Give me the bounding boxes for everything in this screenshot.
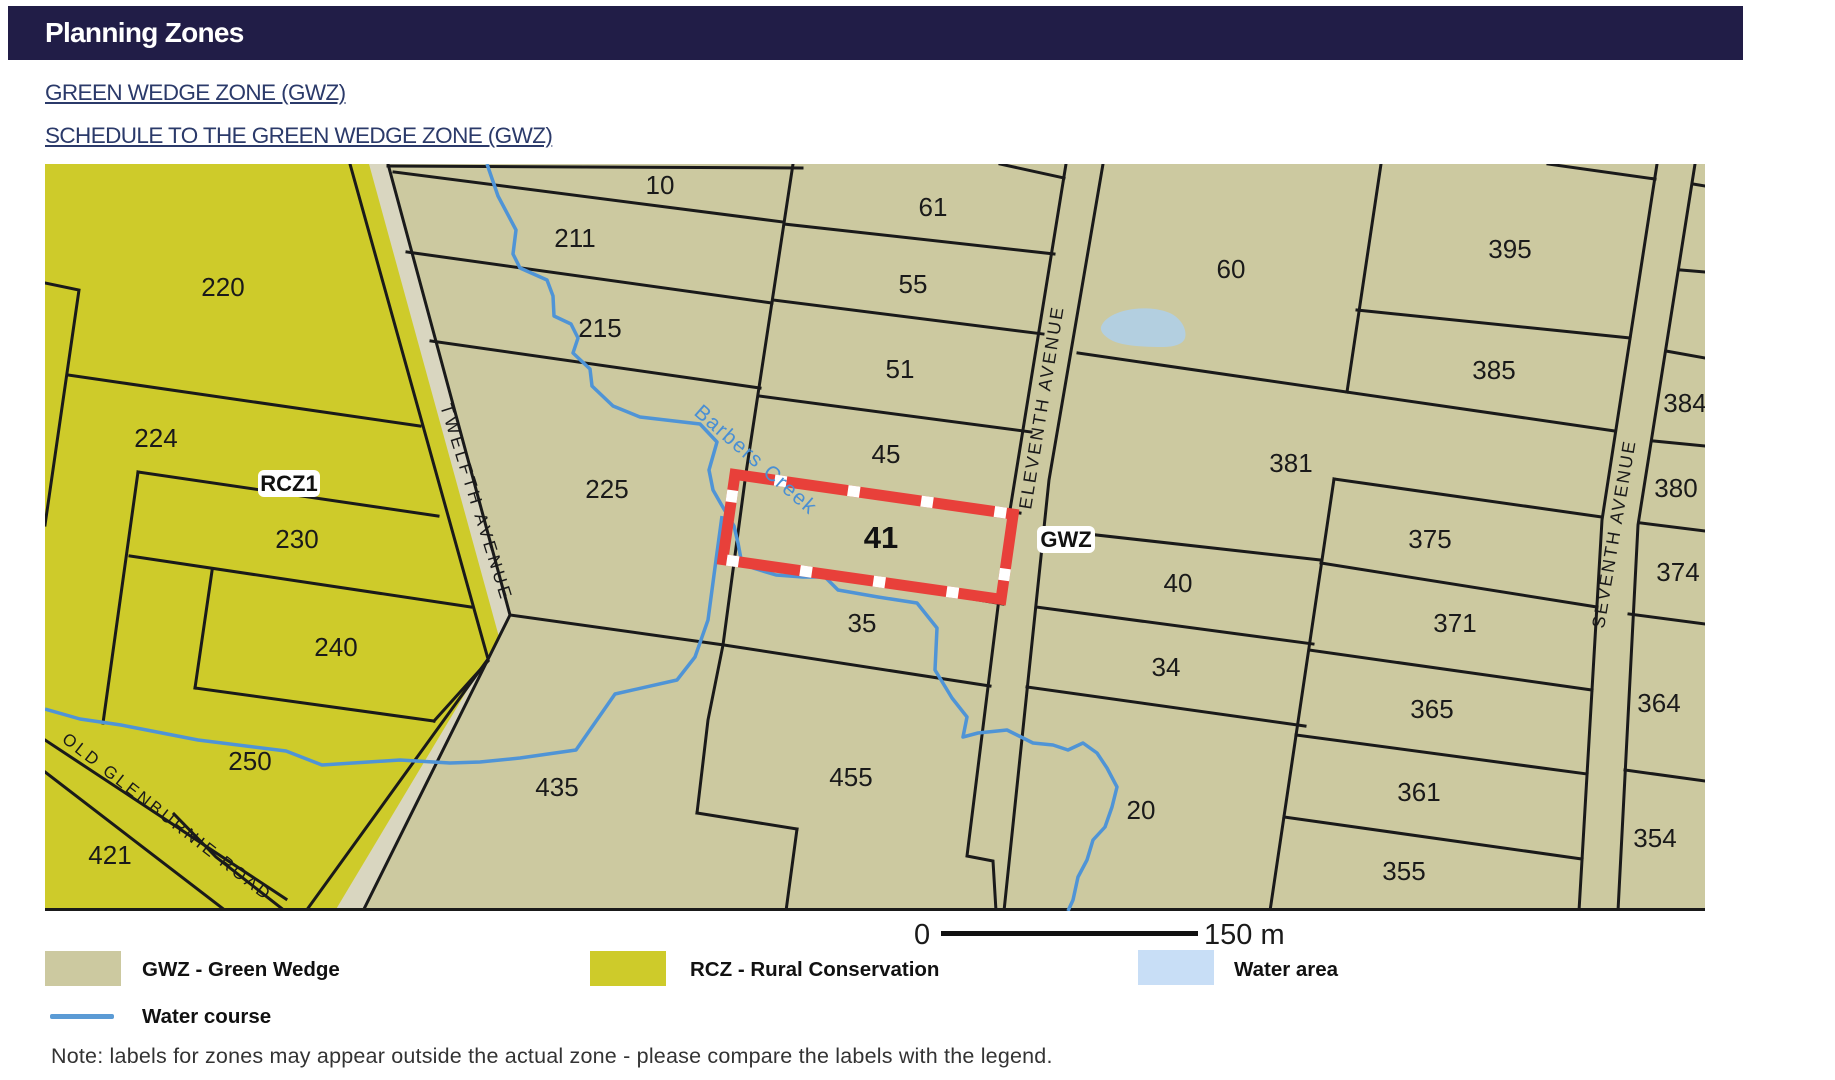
svg-text:361: 361 (1397, 777, 1440, 807)
svg-text:40: 40 (1164, 568, 1193, 598)
svg-text:384: 384 (1663, 388, 1705, 418)
svg-text:51: 51 (886, 354, 915, 384)
svg-text:34: 34 (1152, 652, 1181, 682)
svg-text:35: 35 (848, 608, 877, 638)
svg-text:61: 61 (919, 192, 948, 222)
svg-text:395: 395 (1488, 234, 1531, 264)
svg-text:230: 230 (275, 524, 318, 554)
svg-text:220: 220 (201, 272, 244, 302)
svg-text:365: 365 (1410, 694, 1453, 724)
svg-text:45: 45 (872, 439, 901, 469)
svg-text:41: 41 (864, 520, 898, 555)
svg-text:355: 355 (1382, 856, 1425, 886)
svg-text:381: 381 (1269, 448, 1312, 478)
svg-text:374: 374 (1656, 557, 1699, 587)
svg-text:20: 20 (1127, 795, 1156, 825)
svg-text:375: 375 (1408, 524, 1451, 554)
svg-text:455: 455 (829, 762, 872, 792)
svg-text:371: 371 (1433, 608, 1476, 638)
svg-text:224: 224 (134, 423, 177, 453)
svg-text:435: 435 (535, 772, 578, 802)
svg-text:380: 380 (1654, 473, 1697, 503)
svg-text:225: 225 (585, 474, 628, 504)
svg-text:55: 55 (899, 269, 928, 299)
svg-text:240: 240 (314, 632, 357, 662)
svg-text:250: 250 (228, 746, 271, 776)
svg-text:RCZ1: RCZ1 (260, 471, 317, 496)
svg-text:215: 215 (578, 313, 621, 343)
svg-text:211: 211 (554, 223, 595, 253)
svg-text:364: 364 (1637, 688, 1680, 718)
svg-text:385: 385 (1472, 355, 1515, 385)
svg-text:354: 354 (1633, 823, 1676, 853)
svg-text:60: 60 (1217, 254, 1246, 284)
svg-text:GWZ: GWZ (1040, 527, 1091, 552)
svg-text:421: 421 (88, 840, 131, 870)
svg-text:10: 10 (646, 170, 675, 200)
